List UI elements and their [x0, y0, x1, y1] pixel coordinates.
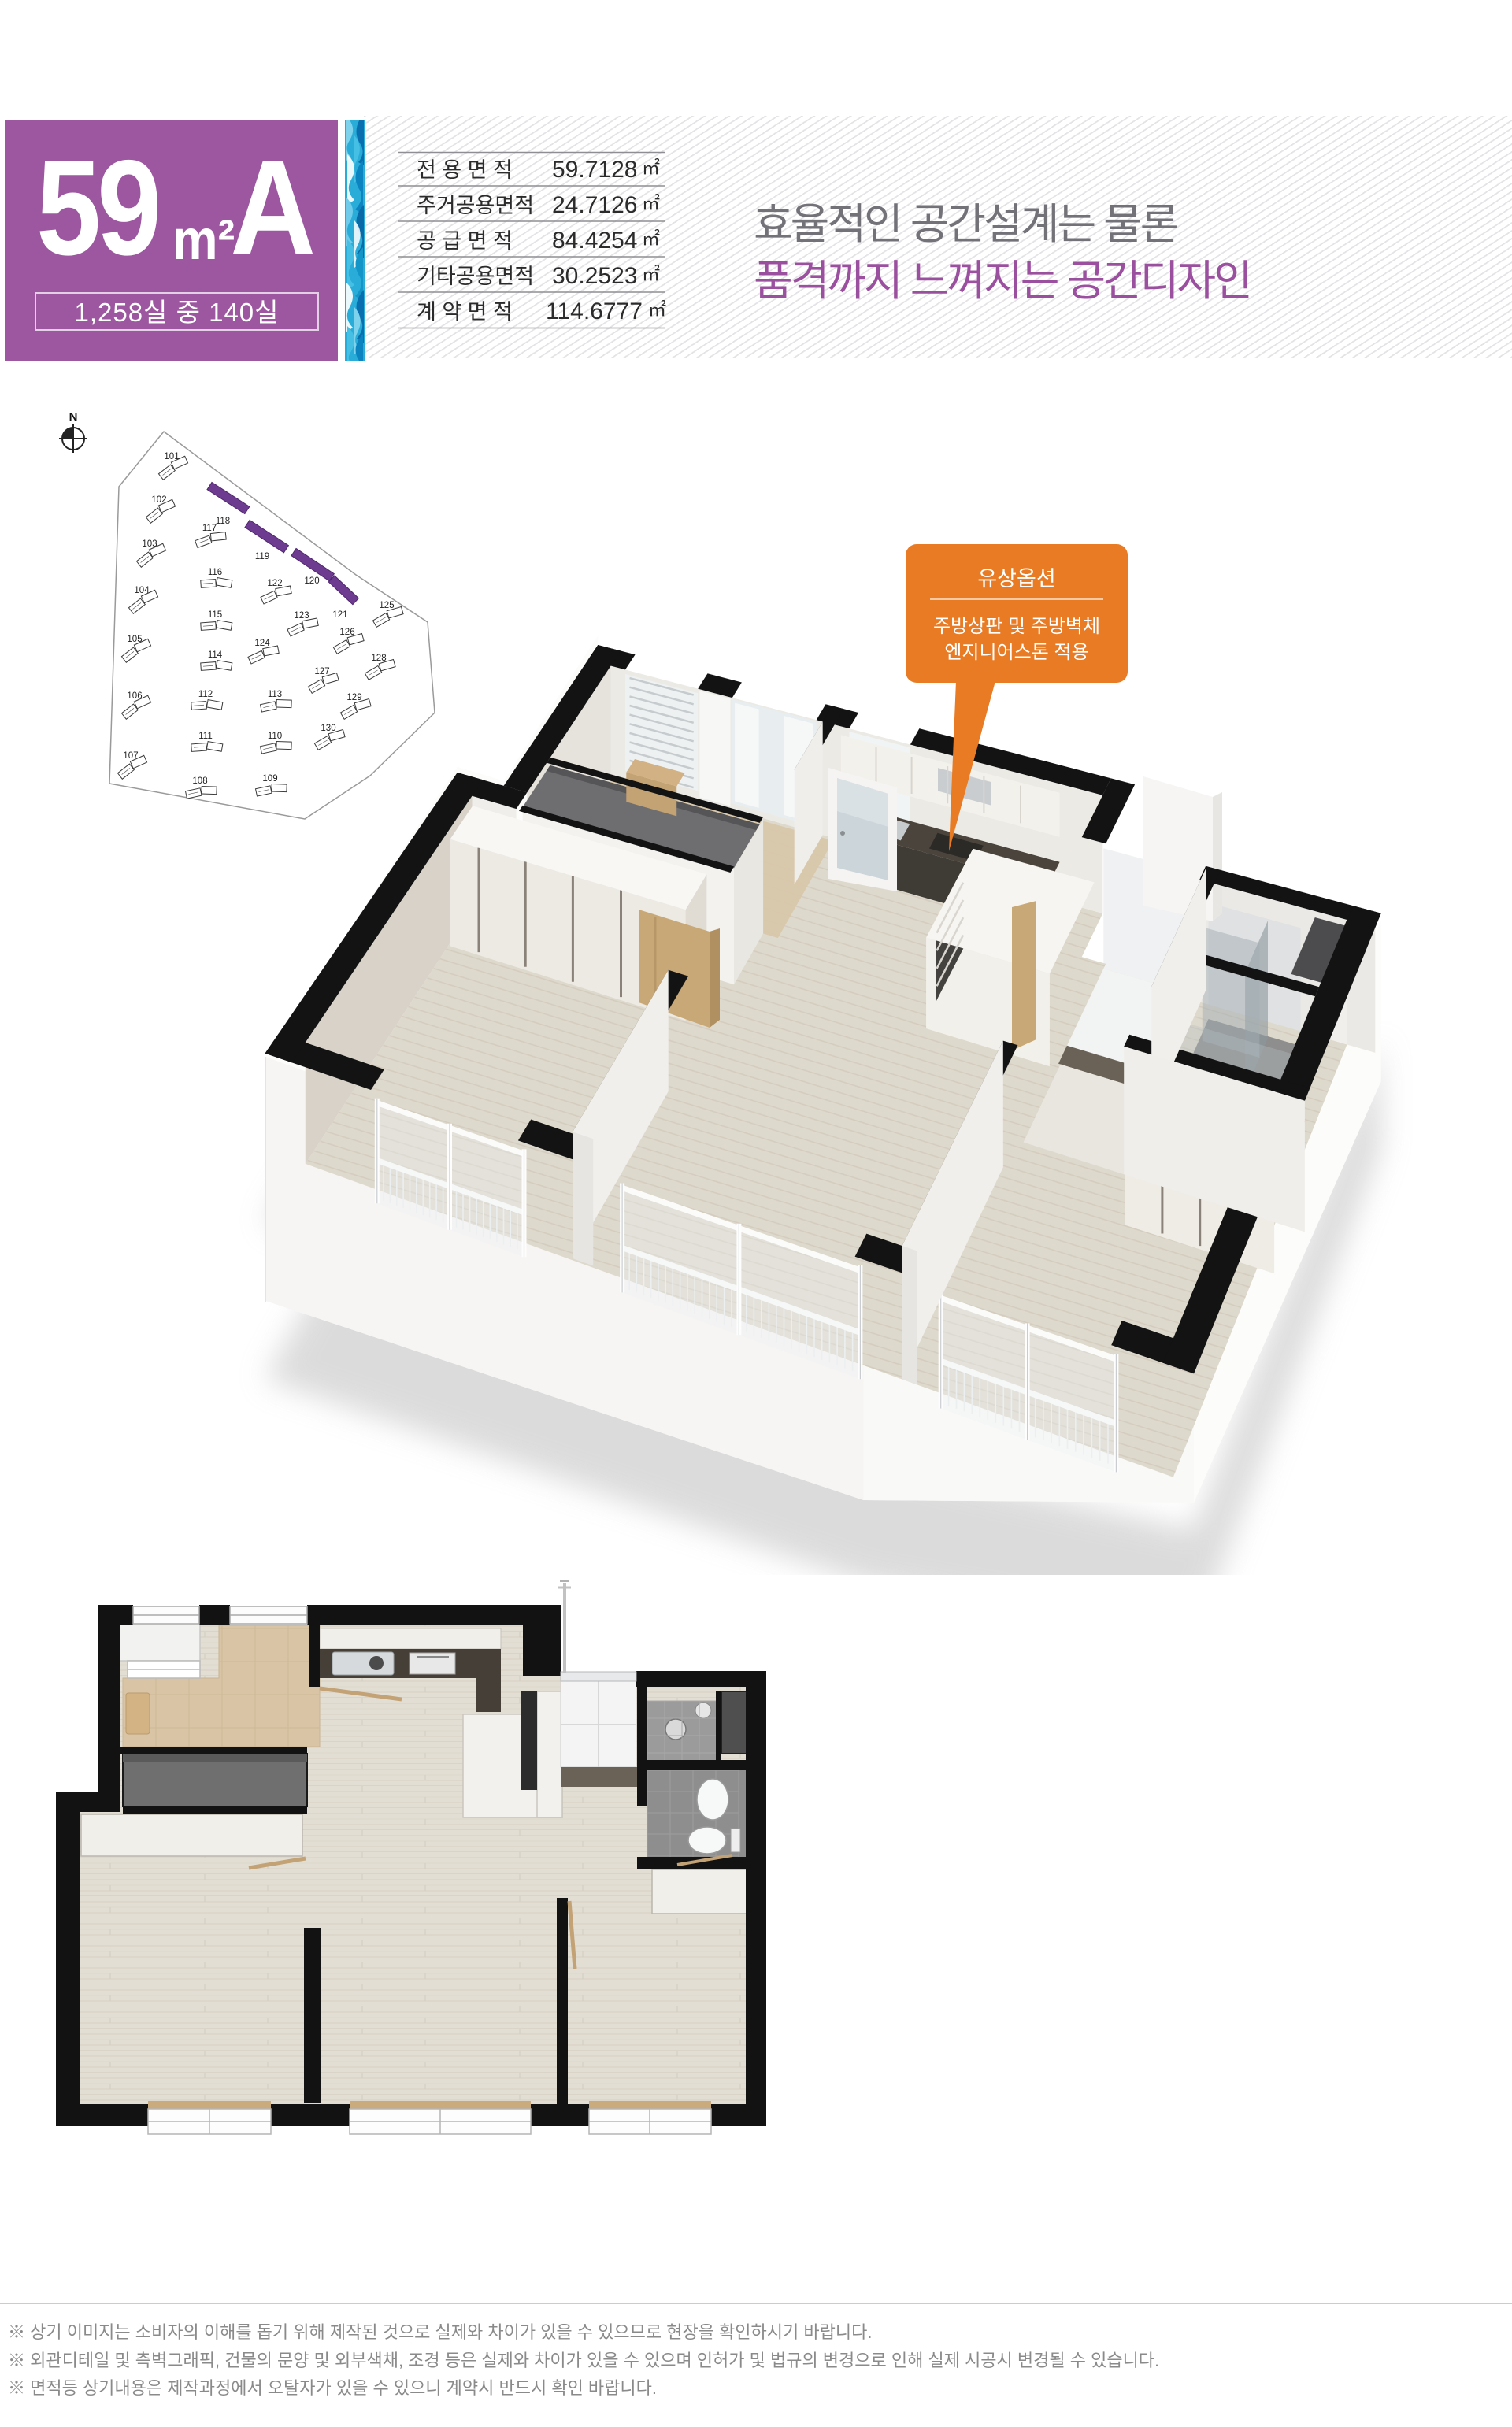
svg-text:103: 103 [142, 539, 157, 549]
svg-text:N: N [69, 410, 78, 424]
svg-text:105: 105 [127, 635, 142, 644]
svg-text:㎡: ㎡ [648, 299, 666, 320]
svg-text:㎡: ㎡ [642, 157, 660, 178]
svg-text:㎡: ㎡ [642, 228, 660, 249]
svg-text:기타공용면적: 기타공용면적 [417, 265, 534, 288]
svg-text:102: 102 [151, 495, 166, 505]
svg-text:107: 107 [123, 751, 138, 761]
svg-text:59.7128: 59.7128 [552, 157, 637, 183]
svg-text:30.2523: 30.2523 [552, 263, 637, 289]
svg-text:104: 104 [134, 586, 150, 595]
svg-text:101: 101 [164, 452, 179, 461]
svg-text:전 용 면 적: 전 용 면 적 [417, 158, 513, 182]
svg-text:계 약 면 적: 계 약 면 적 [417, 300, 513, 324]
svg-text:㎡: ㎡ [642, 193, 660, 213]
svg-text:24.7126: 24.7126 [552, 192, 637, 218]
svg-text:주거공용면적: 주거공용면적 [417, 194, 534, 217]
svg-text:㎡: ㎡ [642, 264, 660, 284]
svg-text:106: 106 [127, 691, 142, 701]
svg-text:84.4254: 84.4254 [552, 228, 637, 254]
svg-text:114.6777: 114.6777 [546, 298, 643, 324]
svg-text:공 급 면 적: 공 급 면 적 [417, 229, 513, 253]
